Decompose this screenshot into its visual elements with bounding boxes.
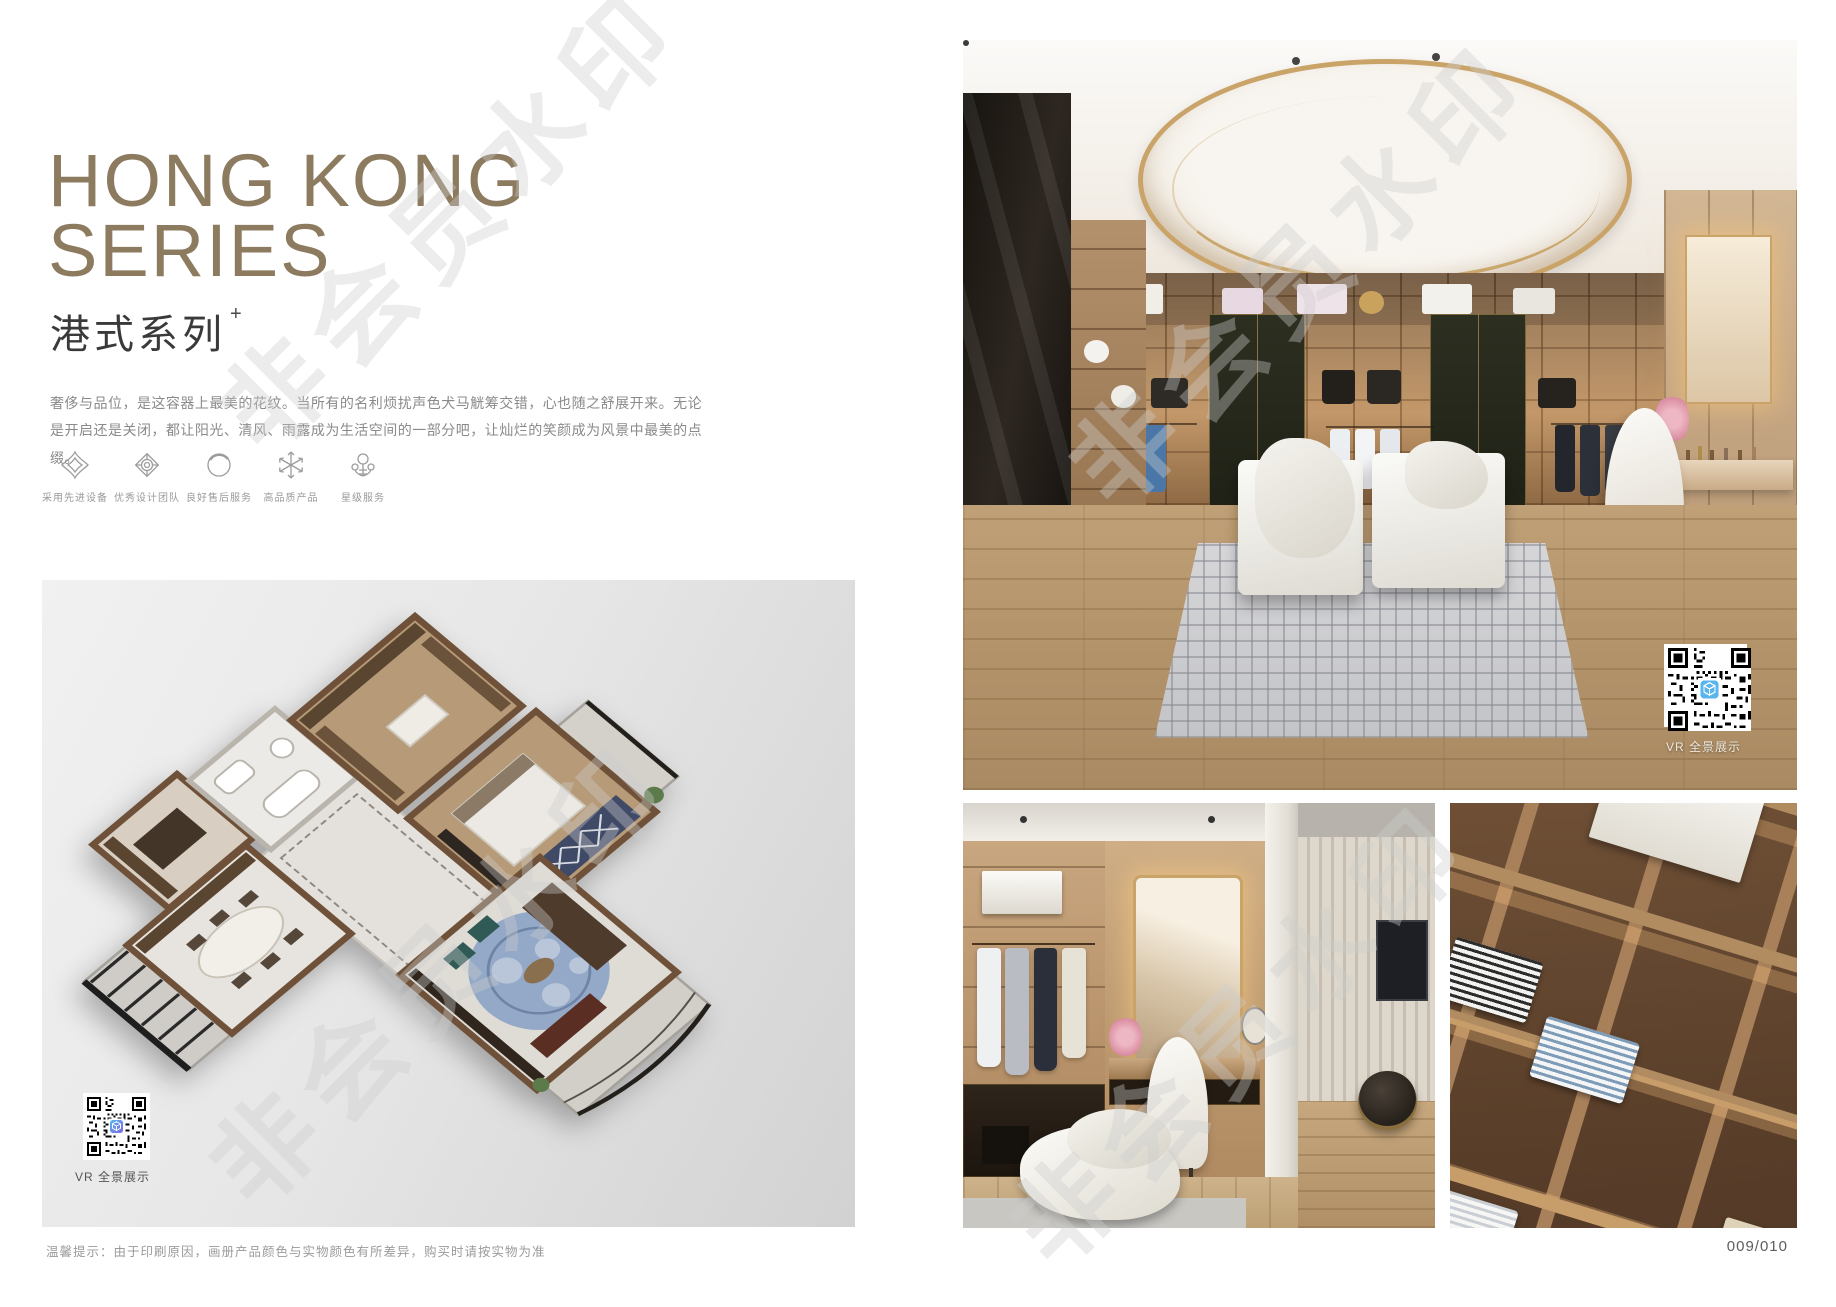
wood-shelf-grid — [1450, 803, 1797, 1228]
hanging-coat — [1555, 425, 1575, 493]
snowflake-icon — [276, 450, 306, 480]
hanging-shirt — [1144, 425, 1166, 493]
hanging-coat — [1580, 425, 1600, 496]
rosette-icon — [132, 450, 162, 480]
main-photo-walkin-closet: VR 全景展示 — [963, 40, 1797, 790]
ring-icon — [204, 450, 234, 480]
feature-item: 高品质产品 — [260, 450, 322, 504]
qr-pattern — [1668, 648, 1751, 731]
clothes-rail — [972, 943, 1095, 945]
feature-label: 高品质产品 — [264, 489, 319, 504]
white-column — [1265, 803, 1298, 1228]
vanity-desk — [1664, 460, 1793, 490]
vr-label-right: VR 全景展示 — [1666, 738, 1741, 755]
leather-ottoman — [1359, 1071, 1416, 1126]
subtitle-cn: 港式系列 — [50, 313, 226, 357]
vanity-mirror — [1685, 235, 1772, 404]
shelf-hat — [1359, 291, 1384, 314]
feature-label: 星级服务 — [341, 489, 385, 504]
qr-pattern — [87, 1097, 146, 1156]
footer-note: 温馨提示：由于印刷原因，画册产品颜色与实物颜色有所差异，购买时请按实物为准 — [46, 1241, 546, 1260]
handbag — [1322, 370, 1355, 404]
feature-item: 采用先进设备 — [44, 450, 106, 504]
shelf-pillow — [1297, 284, 1347, 314]
vr-label-left: VR 全景展示 — [75, 1168, 150, 1185]
pink-flowers — [1109, 1016, 1142, 1059]
wall-frame — [1378, 922, 1425, 999]
storage-box — [982, 871, 1062, 914]
shelf-pillow — [1222, 288, 1264, 314]
cosmetics — [1680, 434, 1780, 460]
hat-box — [1111, 385, 1136, 408]
ornate-key-icon — [348, 450, 378, 480]
round-ceiling-feature — [1138, 59, 1632, 302]
feature-item: 良好售后服务 — [188, 450, 250, 504]
feature-item: 星级服务 — [332, 450, 394, 504]
qr-code-left — [83, 1093, 150, 1160]
adjacent-floor — [1298, 1101, 1435, 1229]
hanging-coat — [1034, 948, 1058, 1071]
feature-label: 良好售后服务 — [186, 489, 252, 504]
hanging-blouse — [1005, 948, 1029, 1076]
white-blanket-fold — [1067, 1109, 1171, 1169]
catalog-page: 非会员水印 非会员水印 非会员水印 非会员水印 HONG KONG SERIES… — [0, 0, 1836, 1307]
lit-mirror — [1133, 875, 1243, 1064]
series-subtitle: 港式系列+ — [50, 302, 246, 360]
feature-list: 采用先进设备 优秀设计团队 良好售后服务 高品质产品 — [44, 450, 394, 504]
title-line-2: SERIES — [48, 216, 526, 286]
shelf-box — [1422, 284, 1472, 314]
handbag — [1367, 370, 1400, 404]
photo-dressing-area — [963, 803, 1435, 1228]
floorplan-graphic — [42, 580, 855, 1227]
feature-label: 采用先进设备 — [42, 489, 108, 504]
photo-shelf-closeup — [1450, 803, 1797, 1228]
qr-code-right — [1664, 644, 1747, 727]
floorplan-image: VR 全景展示 — [42, 580, 855, 1227]
subtitle-plus: + — [230, 303, 246, 325]
clothes-rail — [1326, 426, 1434, 428]
feature-label: 优秀设计团队 — [114, 489, 180, 504]
page-title: HONG KONG SERIES — [48, 146, 526, 287]
handbag — [1538, 378, 1576, 408]
feature-item: 优秀设计团队 — [116, 450, 178, 504]
downlight — [1020, 816, 1027, 823]
hat-box — [1084, 340, 1109, 363]
shelf-box — [1513, 288, 1555, 314]
downlights — [963, 40, 969, 46]
hanging-blouse — [977, 948, 1001, 1067]
page-number: 009/010 — [1727, 1238, 1788, 1255]
ornament-flower-icon — [60, 450, 90, 480]
handbag — [1151, 378, 1189, 408]
title-line-1: HONG KONG — [48, 146, 526, 216]
hanging-dress — [1062, 948, 1086, 1059]
